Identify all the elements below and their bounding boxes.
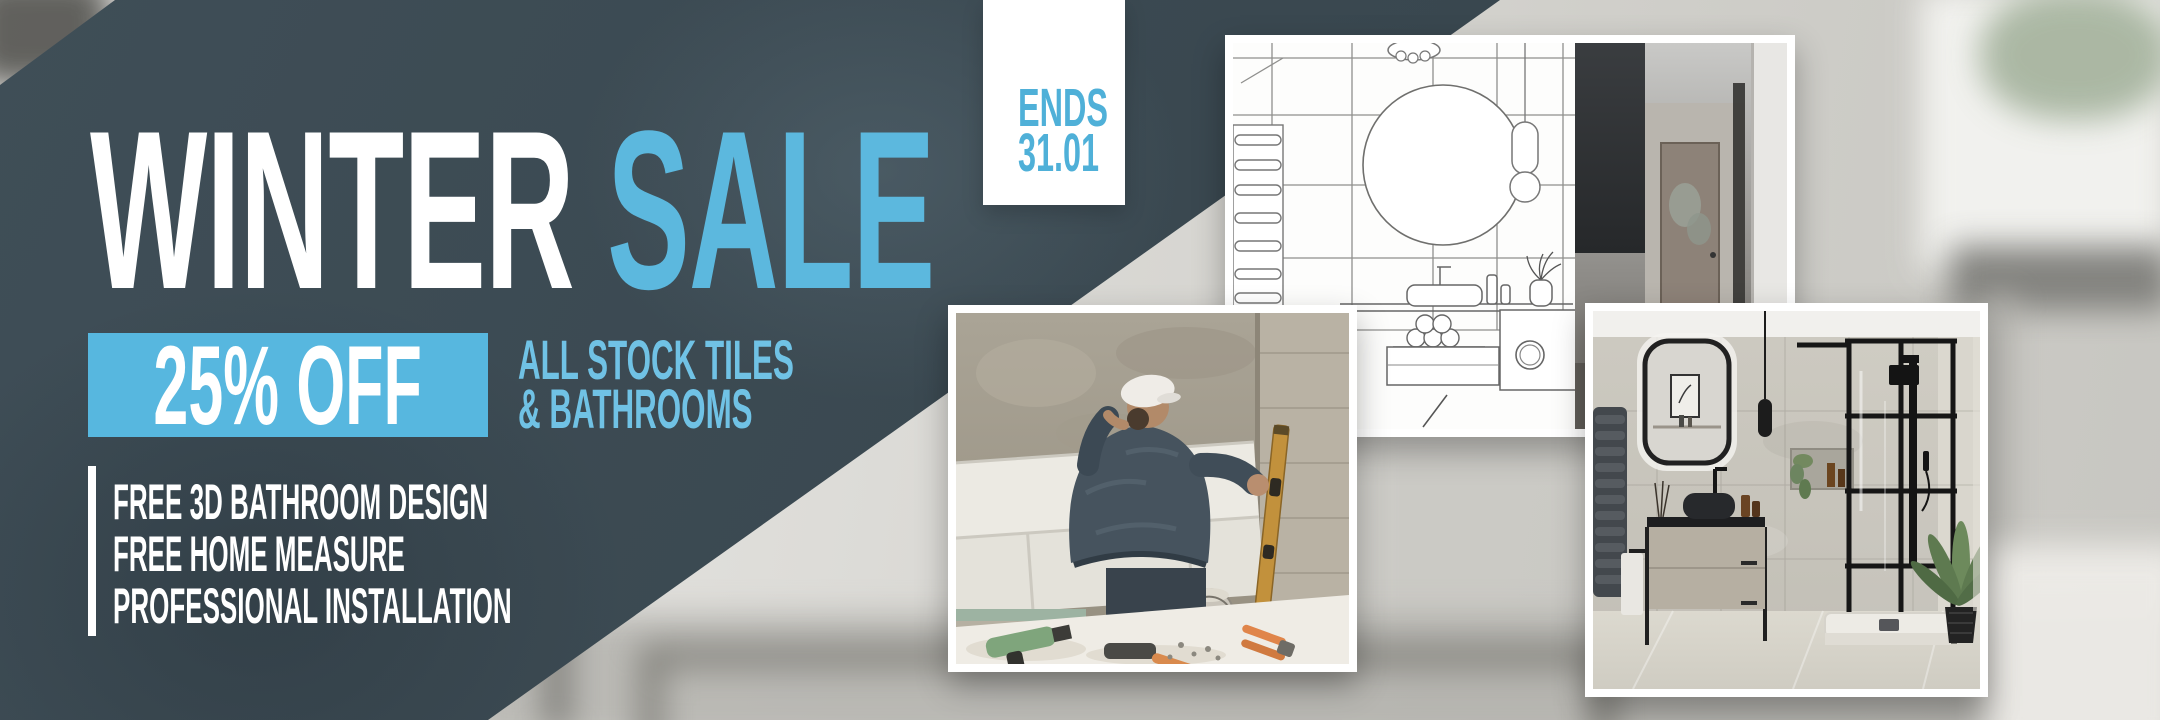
- winter-sale-banner: WINTER SALE ENDS 31.01 25% OFF ALL STOCK…: [0, 0, 2160, 720]
- headline-white: WINTER: [90, 83, 574, 336]
- offer-scope: ALL STOCK TILES & BATHROOMS: [518, 335, 794, 433]
- background-column-blur: [1984, 295, 2016, 585]
- benefit-item: FREE HOME MEASURE: [113, 528, 512, 580]
- headline-accent: SALE: [607, 83, 934, 336]
- modern-bathroom-illustration: [1593, 311, 1980, 689]
- ends-date: 31.01: [1018, 131, 1108, 176]
- background-sill-blur: [1950, 245, 2160, 310]
- benefits-accent-bar: [88, 466, 96, 636]
- offer-scope-line2: & BATHROOMS: [518, 384, 794, 433]
- headline: WINTER SALE: [90, 97, 934, 323]
- tile-installation-photo: [948, 305, 1357, 672]
- background-bright-blur: [1985, 545, 2160, 720]
- ends-badge: ENDS 31.01: [983, 0, 1125, 205]
- ends-badge-text: ENDS 31.01: [1018, 86, 1108, 176]
- tile-installation-illustration: [956, 313, 1349, 664]
- modern-bathroom-photo: [1585, 303, 1988, 697]
- background-plant-blur: [1980, 0, 2160, 120]
- benefit-item: PROFESSIONAL INSTALLATION: [113, 580, 512, 632]
- benefits-list: FREE 3D BATHROOM DESIGN FREE HOME MEASUR…: [113, 476, 512, 632]
- benefit-item: FREE 3D BATHROOM DESIGN: [113, 476, 512, 528]
- discount-text: 25% OFF: [154, 321, 422, 450]
- discount-box: 25% OFF: [88, 333, 488, 437]
